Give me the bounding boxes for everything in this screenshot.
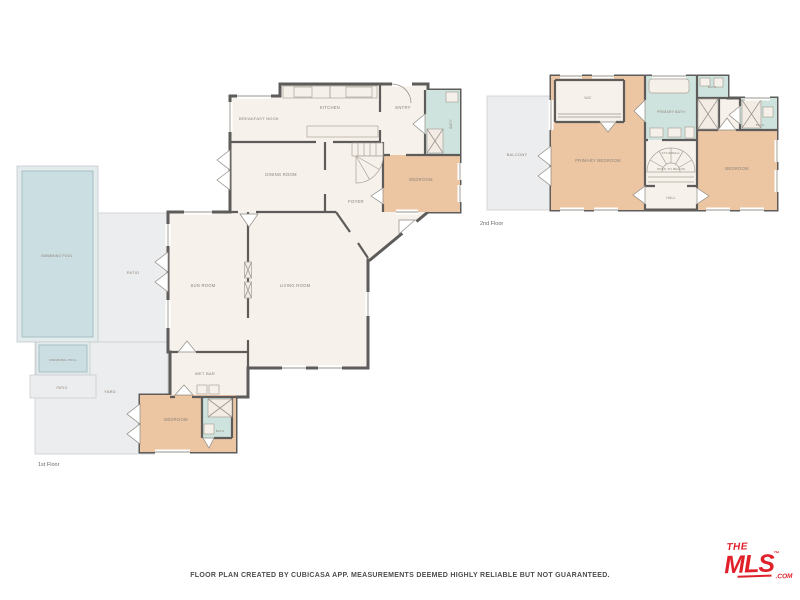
bedroom-right-label: BEDROOM: [725, 166, 749, 171]
kitchen-label: KITCHEN: [320, 105, 340, 110]
disclaimer-text: FLOOR PLAN CREATED BY CUBICASA APP. MEAS…: [0, 572, 800, 579]
open-to-below-label: OPEN TO BELOW: [657, 167, 685, 171]
floor1-plan: SWIMMING POOL PATIO SWIMMING POOL PATIO …: [17, 82, 463, 469]
patio-label: PATIO: [127, 270, 140, 275]
patio-area: [98, 213, 168, 342]
hall-label: HALL: [666, 196, 675, 200]
stairwell-label: STAIRWELL: [662, 151, 681, 155]
floor2-title: 2nd Floor: [480, 221, 503, 227]
floor1-title: 1st Floor: [38, 462, 60, 468]
wet-bar-label: WET BAR: [195, 371, 215, 376]
sun-room-label: SUN ROOM: [190, 283, 215, 288]
yard-label: YARD: [104, 389, 116, 394]
primary-bedroom-label: PRIMARY BEDROOM: [575, 158, 621, 163]
bath-top-label: BATH: [708, 85, 717, 89]
bedroom-label: BEDROOM: [409, 177, 433, 182]
swimming-pool-label: SWIMMING POOL: [41, 254, 73, 258]
floor-plan-drawing: SWIMMING POOL PATIO SWIMMING POOL PATIO …: [0, 0, 800, 600]
living-room-label: LIVING ROOM: [280, 283, 311, 288]
logo-tm-mark: ™: [773, 551, 778, 557]
bath-right-label: BATH: [756, 123, 765, 127]
the-mls-logo: THE MLS™ .COM: [723, 541, 794, 583]
bedroom2-label: BEDROOM: [164, 417, 188, 422]
swimming-pool2-label: SWIMMING POOL: [49, 358, 77, 362]
floor2-plan: BALCONY WIC PRIMARY BEDROOM PRIMARY BATH…: [480, 74, 780, 228]
primary-bath-label: PRIMARY BATH: [657, 110, 685, 114]
patio2-label: PATIO: [57, 386, 68, 390]
wic-label: WIC: [584, 96, 592, 100]
bedroom-area: [383, 155, 460, 212]
floor-plan-page: SWIMMING POOL PATIO SWIMMING POOL PATIO …: [0, 0, 800, 600]
breakfast-nook-label: BREAKFAST NOOK: [239, 116, 279, 121]
balcony-label: BALCONY: [507, 152, 528, 157]
logo-mls-text: MLS™: [724, 551, 780, 578]
wic-area: [555, 80, 624, 122]
entry-label: ENTRY: [395, 105, 410, 110]
bath2-label: BATH: [216, 429, 224, 433]
bath-label: BATH: [449, 119, 453, 129]
dining-room-label: DINING ROOM: [265, 172, 297, 177]
foyer-label: FOYER: [348, 199, 364, 204]
